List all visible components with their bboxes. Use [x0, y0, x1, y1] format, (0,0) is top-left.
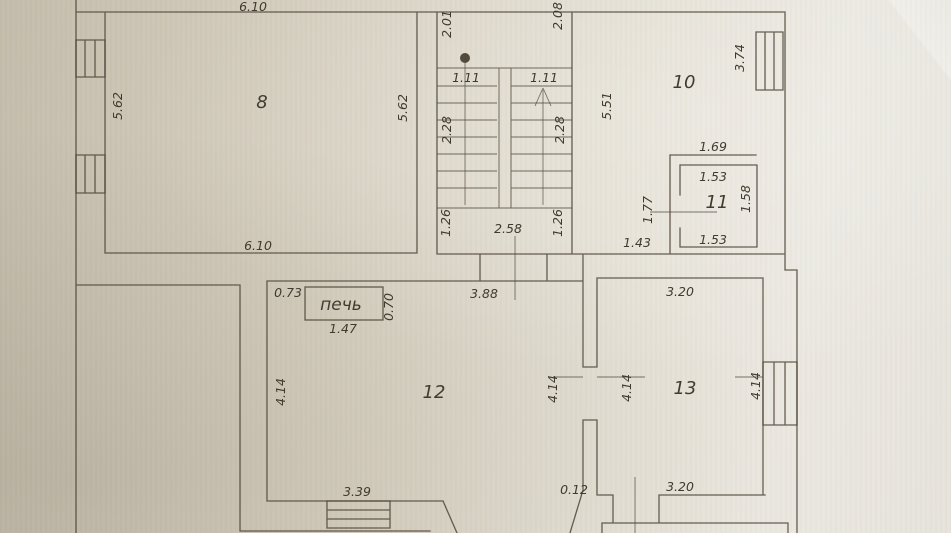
dim-room13-left: 4.14 — [619, 374, 634, 402]
dim-stove-depth: 0.70 — [381, 293, 396, 321]
dim-landing-depth-left: 1.26 — [438, 209, 453, 237]
stair-route-start-dot — [460, 53, 470, 63]
dim-room12-top: 3.88 — [470, 286, 498, 301]
dimension-leaders — [515, 212, 763, 533]
dim-room12-left: 4.14 — [273, 378, 288, 406]
stove-label: печь — [320, 295, 362, 315]
window-room10-right — [756, 32, 783, 90]
dim-room13-right: 4.14 — [748, 372, 763, 400]
dim-room11-door: 1.77 — [640, 196, 655, 224]
dim-landing-depth-right: 1.26 — [550, 209, 565, 237]
room13-number: 13 — [674, 378, 697, 399]
dim-room13-bottom: 3.20 — [666, 479, 694, 494]
window-room8-left-2 — [76, 155, 105, 193]
dim-room8-bottom: 6.10 — [244, 238, 272, 253]
dim-flight-left-length: 2.28 — [439, 116, 454, 144]
dim-landing-bottom: 2.58 — [494, 221, 522, 236]
stair-direction-arrow — [535, 88, 551, 205]
window-room13-right — [763, 362, 797, 425]
room11-number: 11 — [706, 192, 729, 213]
dim-room8-top: 6.10 — [239, 0, 267, 14]
dim-room11-top: 1.53 — [699, 169, 727, 184]
window-room12-bottom — [327, 501, 390, 528]
floor-plan-drawing: 6.10 2.01 2.08 5.62 8 5.62 1.11 1.11 5.5… — [0, 0, 951, 533]
dim-corridor: 1.43 — [623, 235, 651, 250]
dim-gap: 0.12 — [560, 482, 588, 497]
room8-number: 8 — [256, 92, 267, 113]
dim-flight-right-width: 1.11 — [530, 70, 558, 85]
room10-number: 10 — [673, 72, 696, 93]
dim-landing-right: 2.08 — [550, 2, 565, 30]
dim-room13-top: 3.20 — [666, 284, 694, 299]
dim-stove-offset: 0.73 — [274, 285, 302, 300]
dim-flight-left-width: 1.11 — [452, 70, 480, 85]
dim-room11-bottom: 1.53 — [699, 232, 727, 247]
window-room8-left-1 — [76, 40, 105, 77]
dim-stairwell-height: 5.51 — [599, 92, 614, 120]
dim-room12-right: 4.14 — [545, 375, 560, 403]
dim-room12-bottom: 3.39 — [343, 484, 371, 499]
room12-number: 12 — [423, 382, 446, 403]
dim-room8-right: 5.62 — [395, 94, 410, 122]
dim-room8-left: 5.62 — [110, 92, 125, 120]
dim-room11-right: 1.58 — [738, 185, 753, 213]
dim-landing-left: 2.01 — [439, 10, 454, 38]
dim-stove-width: 1.47 — [329, 321, 357, 336]
dim-flight-right-length: 2.28 — [552, 116, 567, 144]
dim-room10-window: 3.74 — [732, 44, 747, 72]
floor-plan-photo: 6.10 2.01 2.08 5.62 8 5.62 1.11 1.11 5.5… — [0, 0, 951, 533]
dim-room11-outer-width: 1.69 — [699, 139, 727, 154]
